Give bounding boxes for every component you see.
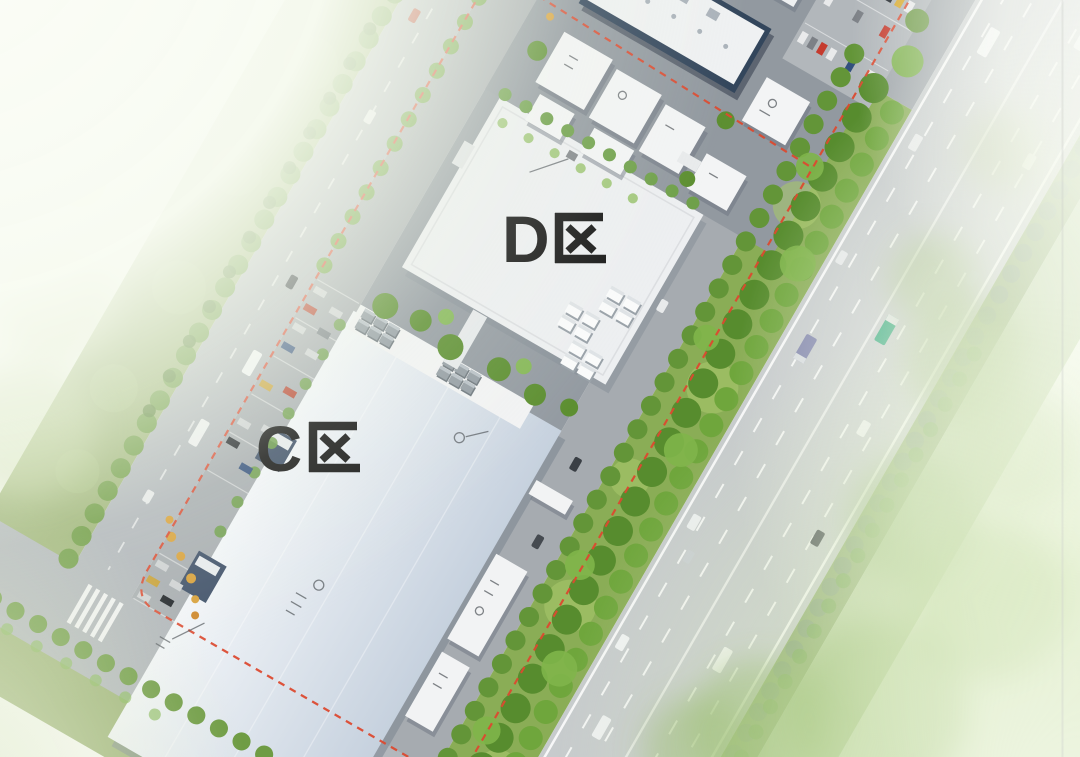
fade-bottom-left bbox=[0, 0, 1080, 757]
site-plan-rendering: D C bbox=[0, 0, 1080, 757]
site-plan-svg: D C bbox=[0, 0, 1080, 757]
vignette bbox=[0, 0, 1080, 757]
